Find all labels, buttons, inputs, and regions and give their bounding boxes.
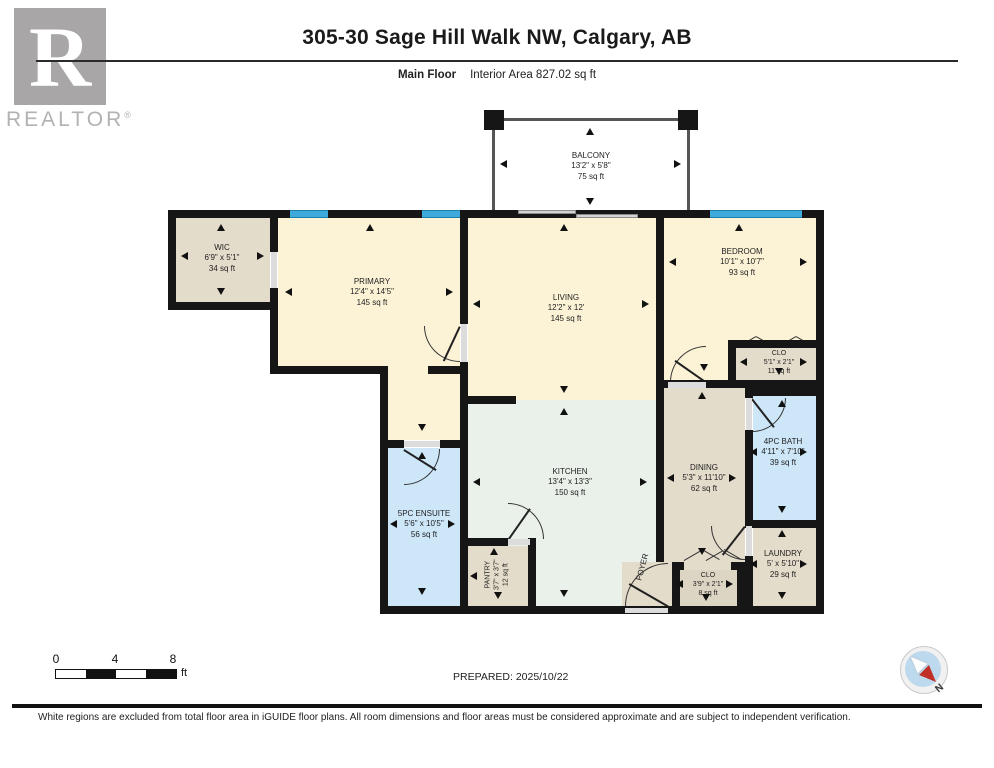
dimension-arrow	[473, 300, 480, 308]
wall	[460, 396, 516, 404]
realtor-logo-icon: R	[14, 8, 106, 105]
dimension-arrow	[500, 160, 507, 168]
balcony-wall	[492, 130, 495, 210]
dimension-arrow	[800, 448, 807, 456]
dimension-arrow	[560, 224, 568, 231]
scale-tick-8: 8	[166, 652, 180, 666]
realtor-logo-text: REALTOR®	[6, 108, 134, 132]
dimension-arrow	[726, 580, 733, 588]
door-opening-entry	[625, 608, 668, 613]
dimension-arrow	[418, 588, 426, 595]
door-opening-primary	[461, 324, 467, 362]
dimension-arrow	[778, 506, 786, 513]
dimension-arrow	[800, 560, 807, 568]
sliding-door-panel	[518, 210, 576, 214]
footer-divider	[12, 704, 982, 708]
door-opening-bedroom	[668, 382, 706, 388]
dimension-arrow	[560, 408, 568, 415]
dimension-arrow	[490, 548, 498, 555]
dimension-arrow	[285, 288, 292, 296]
page-title: 305-30 Sage Hill Walk NW, Calgary, AB	[0, 26, 994, 50]
wall	[380, 440, 404, 448]
sliding-door-panel	[576, 214, 638, 218]
dimension-arrow	[698, 392, 706, 399]
dimension-arrow	[778, 592, 786, 599]
door-opening-ensuite	[404, 441, 440, 447]
dimension-arrow	[642, 300, 649, 308]
wall	[728, 340, 816, 348]
dimension-arrow	[560, 590, 568, 597]
dimension-arrow	[494, 592, 502, 599]
footer-disclaimer: White regions are excluded from total fl…	[38, 712, 968, 723]
wall	[380, 606, 824, 614]
room-label-living: LIVING12'2" x 12'145 sq ft	[506, 293, 626, 324]
wall	[168, 302, 278, 310]
door-opening-pantry	[508, 539, 530, 545]
dimension-arrow	[586, 128, 594, 135]
door-opening-bath	[746, 398, 752, 430]
dimension-arrow	[778, 530, 786, 537]
dimension-arrow	[217, 288, 225, 295]
dimension-arrow	[735, 224, 743, 231]
wall	[428, 366, 468, 374]
dimension-arrow	[217, 224, 225, 231]
realtor-logo-letter: R	[29, 14, 91, 100]
room-label-bedroom: BEDROOM10'1" x 10'7"93 sq ft	[682, 247, 802, 278]
floor-subtitle: Main FloorInterior Area 827.02 sq ft	[0, 69, 994, 81]
room-label-wic: WIC6'9" x 5'1"34 sq ft	[162, 243, 282, 274]
dimension-arrow	[750, 560, 757, 568]
scale-unit-label: ft	[181, 667, 187, 679]
wall	[380, 366, 388, 614]
dimension-arrow	[181, 252, 188, 260]
dimension-arrow	[473, 478, 480, 486]
wall	[270, 366, 388, 374]
dimension-arrow	[750, 448, 757, 456]
scale-tick-0: 0	[49, 652, 63, 666]
dimension-arrow	[418, 452, 426, 459]
wall	[270, 288, 278, 304]
dimension-arrow	[698, 548, 706, 555]
dimension-arrow	[257, 252, 264, 260]
dimension-arrow	[775, 368, 783, 375]
compass-north-label: N	[933, 682, 946, 695]
dimension-arrow	[702, 594, 710, 601]
dimension-arrow	[674, 160, 681, 168]
wall	[440, 440, 468, 448]
window	[290, 210, 328, 218]
floorplan-page: R REALTOR® 305-30 Sage Hill Walk NW, Cal…	[0, 0, 994, 768]
room-label-ensuite: 5PC ENSUITE5'6" x 10'5"56 sq ft	[364, 509, 484, 540]
dimension-arrow	[586, 198, 594, 205]
dimension-arrow	[800, 358, 807, 366]
dimension-arrow	[448, 520, 455, 528]
dimension-arrow	[560, 386, 568, 393]
balcony-rail	[504, 118, 678, 121]
dimension-arrow	[667, 474, 674, 482]
dimension-arrow	[700, 364, 708, 371]
dimension-arrow	[676, 580, 683, 588]
interior-area-label: Interior Area 827.02 sq ft	[470, 69, 596, 81]
wall	[745, 388, 753, 398]
wall	[270, 302, 278, 374]
floor-label: Main Floor	[398, 69, 456, 81]
room-label-dining: DINING5'3" x 11'10"62 sq ft	[644, 463, 764, 494]
dimension-arrow	[418, 424, 426, 431]
prepared-date-label: PREPARED: 2025/10/22	[453, 671, 568, 683]
header-divider	[36, 60, 958, 62]
scale-tick-4: 4	[108, 652, 122, 666]
room-label-primary: PRIMARY12'4" x 14'5"145 sq ft	[312, 277, 432, 308]
dimension-arrow	[390, 520, 397, 528]
wall	[745, 520, 816, 528]
wall	[656, 210, 664, 388]
dimension-arrow	[729, 474, 736, 482]
window	[710, 210, 802, 218]
dimension-arrow	[800, 258, 807, 266]
scale-bar	[55, 669, 177, 679]
wall	[672, 562, 684, 570]
dimension-arrow	[778, 400, 786, 407]
window	[422, 210, 460, 218]
balcony-wall	[687, 130, 690, 210]
wall	[460, 210, 468, 324]
wall	[528, 538, 536, 606]
room-label-kitchen: KITCHEN13'4" x 13'3"150 sq ft	[510, 467, 630, 498]
dimension-arrow	[669, 258, 676, 266]
dimension-arrow	[740, 358, 747, 366]
room-label-balcony: BALCONY13'2" x 5'8"75 sq ft	[531, 151, 651, 182]
dimension-arrow	[446, 288, 453, 296]
dimension-arrow	[470, 572, 477, 580]
dimension-arrow	[640, 478, 647, 486]
balcony-post	[484, 110, 504, 130]
balcony-post	[678, 110, 698, 130]
wall	[745, 388, 816, 396]
dimension-arrow	[366, 224, 374, 231]
